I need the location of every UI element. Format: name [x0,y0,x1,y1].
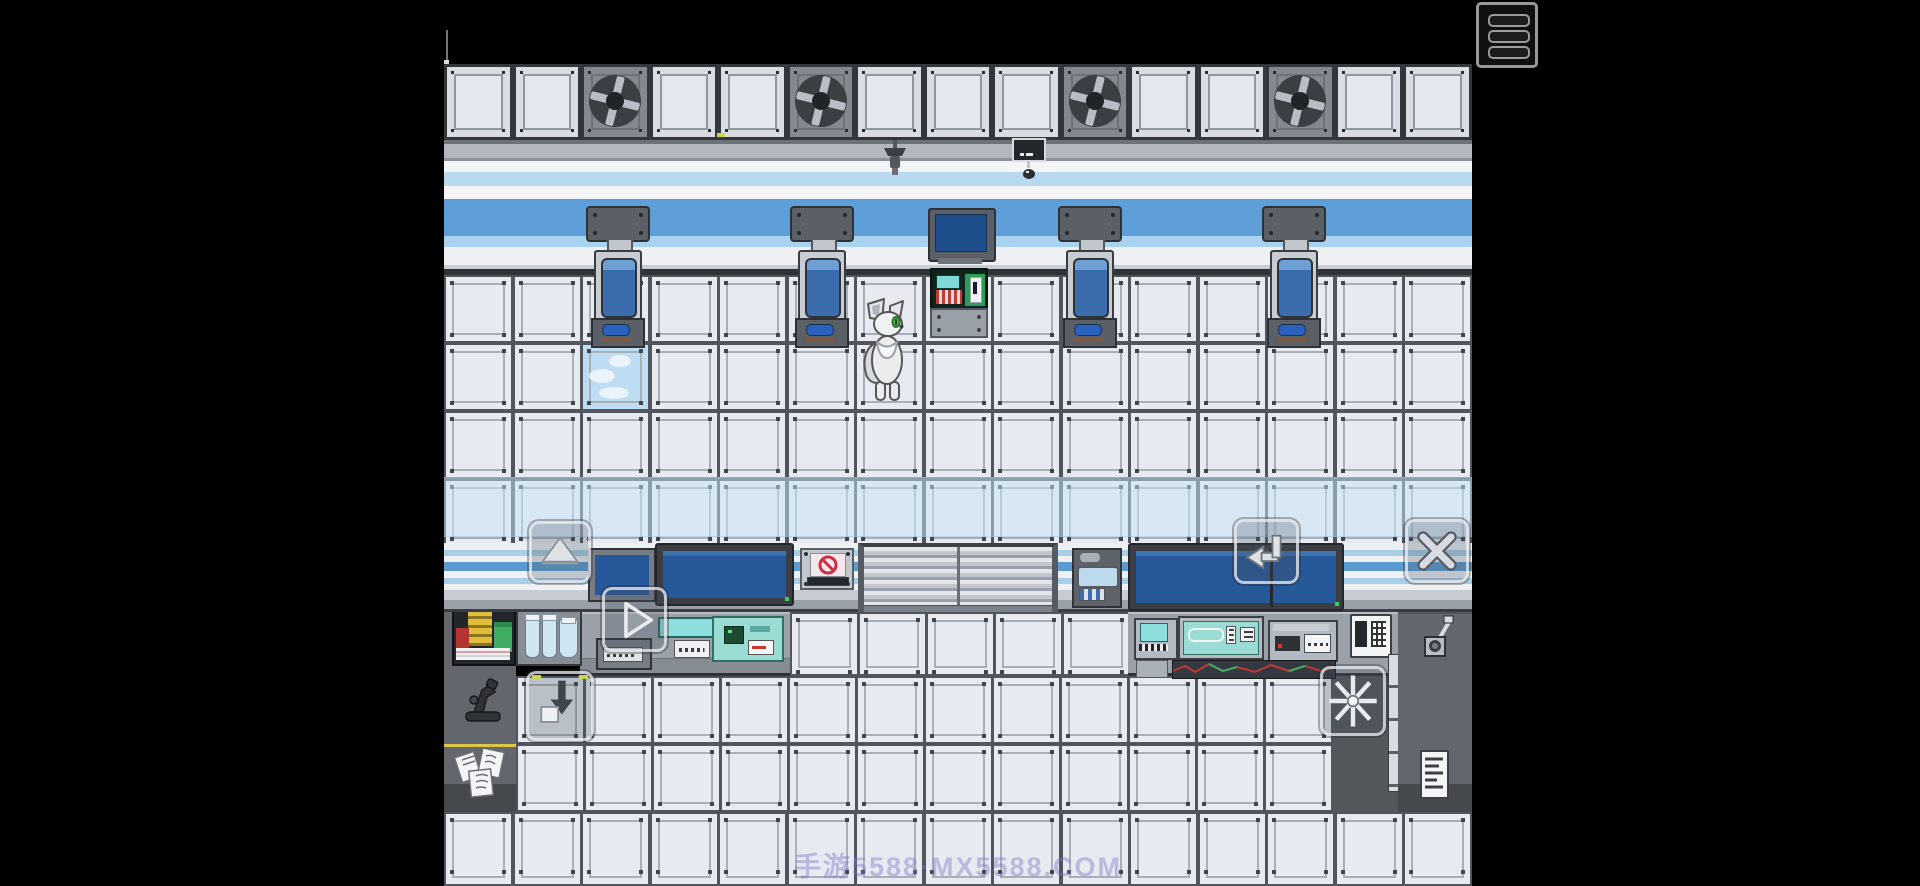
ceiling-fan-tile [1266,64,1335,140]
floor-tile [1196,744,1265,812]
glassware-panel [516,604,582,666]
hanging-scanner-machine [586,206,650,348]
floor-tile [720,744,789,812]
test-tube-icon [542,614,557,658]
machine-base [1267,318,1321,348]
microscope-icon [460,676,508,724]
wall-tile [924,343,993,411]
wall-tile [787,343,856,411]
machine-base [795,318,849,348]
ceiling-tile [855,64,924,140]
wall-tile [1335,411,1404,479]
phone-device [1350,614,1392,658]
control-console [930,268,988,338]
wall-tile [650,275,719,343]
wall-tile [1403,343,1472,411]
machine-mount-plate [790,206,854,242]
sprinkler-icon [882,140,908,187]
ceiling-fan-tile [787,64,856,140]
wall-tile [513,411,582,479]
console-scanner [964,273,986,307]
mini-display [674,640,710,658]
hanging-scanner-machine [1058,206,1122,348]
machine-mount-plate [1058,206,1122,242]
wall-tile [650,411,719,479]
right-counter-column [1398,598,1472,812]
floor-tile [790,612,859,676]
wall-tile [650,343,719,411]
machine-screen [805,258,841,318]
floor-tile [858,612,927,676]
sky-window-tile [581,343,650,411]
wall-tile [444,411,513,479]
flask-icon [559,618,578,658]
floor-tile [516,744,585,812]
floor-tile [652,676,721,744]
wall-monitor-screen [935,214,987,252]
floor-tile [926,612,995,676]
wall-tile [513,275,582,343]
ceiling-tile [1129,64,1198,140]
wall-tile [1198,343,1267,411]
spark-button[interactable] [1320,666,1386,736]
scattered-papers-icon [454,748,510,802]
wall-monitor [928,208,996,262]
machine-base [1063,318,1117,348]
enter-button[interactable] [1234,519,1299,584]
wall-tile [444,275,513,343]
wall-tile [1335,275,1404,343]
console-display-panel [930,268,988,312]
ceiling-tile [1335,64,1404,140]
door-shutter [858,543,1058,612]
console-teal-screen [936,275,960,289]
document-list-icon [1420,750,1450,805]
floor-tile [1060,676,1129,744]
floor-tile [856,744,925,812]
floor-tile [992,744,1061,812]
wall-tile [1403,275,1472,343]
machine-screen [601,258,637,318]
floor-tile [720,676,789,744]
hanging-scanner-machine [1262,206,1326,348]
floor-tile [1264,744,1333,812]
wall-tile [992,343,1061,411]
ceiling-tile [650,64,719,140]
floor-tile [584,676,653,744]
teal-display-machine [1178,616,1264,660]
ceiling-tile [513,64,582,140]
machine-mount-plate [1262,206,1326,242]
gray-box [1136,660,1168,678]
white-wolf-character [860,298,914,404]
floor-tile [992,676,1061,744]
specimen-shelf [452,604,516,666]
ceiling-tile [924,64,993,140]
keypad-machine [1134,618,1178,660]
wall-monitor-shadow [938,258,982,264]
game-viewport: 手游5588·MX5588.COM [444,0,1472,886]
machine-screen [1073,258,1109,318]
floor-tile [584,744,653,812]
machine-mount-plate [586,206,650,242]
wall-tile [1198,275,1267,343]
no-entry-icon [810,553,846,577]
test-tube-icon [525,614,540,658]
wall-tile [1129,411,1198,479]
calibration-line [446,30,448,64]
floor-tile [924,744,993,812]
wall-tile [718,275,787,343]
floor-tile [924,676,993,744]
wall-tile [1266,343,1335,411]
console-base [930,308,988,338]
wall-tile [513,343,582,411]
console-keypad [936,290,962,304]
floor-tile [788,744,857,812]
shelf-papers [456,648,510,660]
floor-tile [994,612,1063,676]
forward-button[interactable] [602,587,667,652]
ceiling-tile [718,64,787,140]
hanging-scanner-machine [790,206,854,348]
wall-tile [718,411,787,479]
wide-monitor-left [655,543,794,606]
menu-button[interactable] [1476,2,1538,68]
wall-tile [581,411,650,479]
wall-tile [444,343,513,411]
item-drop-button[interactable] [526,671,594,741]
wall-tile [992,275,1061,343]
ceiling-row [444,64,1472,140]
watermark-text: 手游5588·MX5588.COM [444,845,1472,884]
ceiling-tile [444,64,513,140]
floor-tile [1128,676,1197,744]
floor-tile [788,676,857,744]
wall-tile [1129,275,1198,343]
floor-reflection-band [444,477,1472,537]
wall-tile [1403,411,1472,479]
ceiling-fan-tile [581,64,650,140]
wall-tile [718,343,787,411]
floor-tile [652,744,721,812]
wall-tile [1198,411,1267,479]
close-button[interactable] [1405,519,1469,583]
screen: 手游5588·MX5588.COM [0,0,1920,886]
ceiling-fan-tile [1061,64,1130,140]
wall-tile [1129,343,1198,411]
ceiling-accent [717,133,725,137]
ceiling-tile [1403,64,1472,140]
yellow-folder [468,610,492,646]
no-entry-sign [800,548,854,590]
wall-tile [924,411,993,479]
security-camera-icon [1012,138,1046,189]
floor-tile [1196,676,1265,744]
floor-tile [1060,744,1129,812]
machine-base [591,318,645,348]
wall-tile [855,411,924,479]
ceiling-tile [992,64,1061,140]
waveform-display [1172,660,1336,679]
floor-tile [1128,744,1197,812]
wall-tile [1061,343,1130,411]
ceiling-tile [1198,64,1267,140]
wall-tile [787,411,856,479]
up-button[interactable] [529,521,591,583]
analyzer-machine [712,616,784,662]
machine-screen [1277,258,1313,318]
wall-tile [1061,411,1130,479]
shelf-divider-line [444,744,516,747]
lever-device-icon [1422,614,1454,663]
wall-tile [992,411,1061,479]
meter-machine [1268,620,1338,662]
wall-tile [1266,411,1335,479]
small-console-right [1072,548,1122,608]
wall-tile [1335,343,1404,411]
floor-tile [1062,612,1131,676]
floor-tile [856,676,925,744]
